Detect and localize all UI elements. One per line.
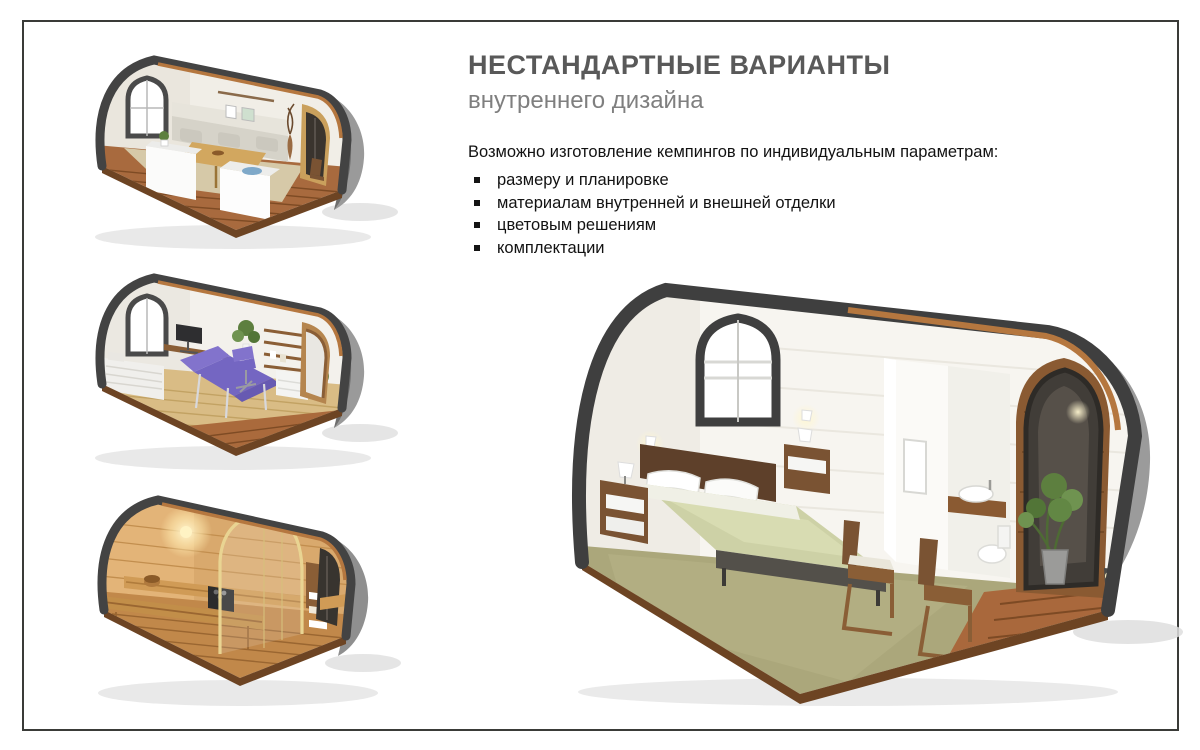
- bullet-square-icon: [474, 200, 480, 206]
- bullet-item: размеру и планировке: [468, 169, 1128, 192]
- slide: НЕСТАНДАРТНЫЕ ВАРИАНТЫ внутреннего дизай…: [0, 0, 1200, 750]
- text-block: НЕСТАНДАРТНЫЕ ВАРИАНТЫ внутреннего дизай…: [468, 50, 1128, 259]
- intro-line: Возможно изготовление кемпингов по индив…: [468, 143, 1128, 162]
- pod-sauna-illustration: [68, 478, 403, 713]
- bullet-item: материалам внутренней и внешней отделки: [468, 192, 1128, 215]
- page-subtitle: внутреннего дизайна: [468, 87, 1128, 115]
- bullet-square-icon: [474, 177, 480, 183]
- bullet-item: комплектации: [468, 237, 1128, 260]
- bullet-item: цветовым решениям: [468, 214, 1128, 237]
- bullet-text: цветовым решениям: [497, 214, 656, 237]
- page-title: НЕСТАНДАРТНЫЕ ВАРИАНТЫ: [468, 50, 1128, 81]
- bullet-text: комплектации: [497, 237, 605, 260]
- pod-living-room-illustration: [68, 40, 403, 255]
- bullet-list: размеру и планировке материалам внутренн…: [468, 169, 1128, 259]
- pod-bedroom-illustration: [548, 262, 1188, 707]
- bullet-square-icon: [474, 222, 480, 228]
- bullet-text: материалам внутренней и внешней отделки: [497, 192, 836, 215]
- pod-massage-room-illustration: [68, 258, 403, 476]
- bullet-square-icon: [474, 245, 480, 251]
- bullet-text: размеру и планировке: [497, 169, 669, 192]
